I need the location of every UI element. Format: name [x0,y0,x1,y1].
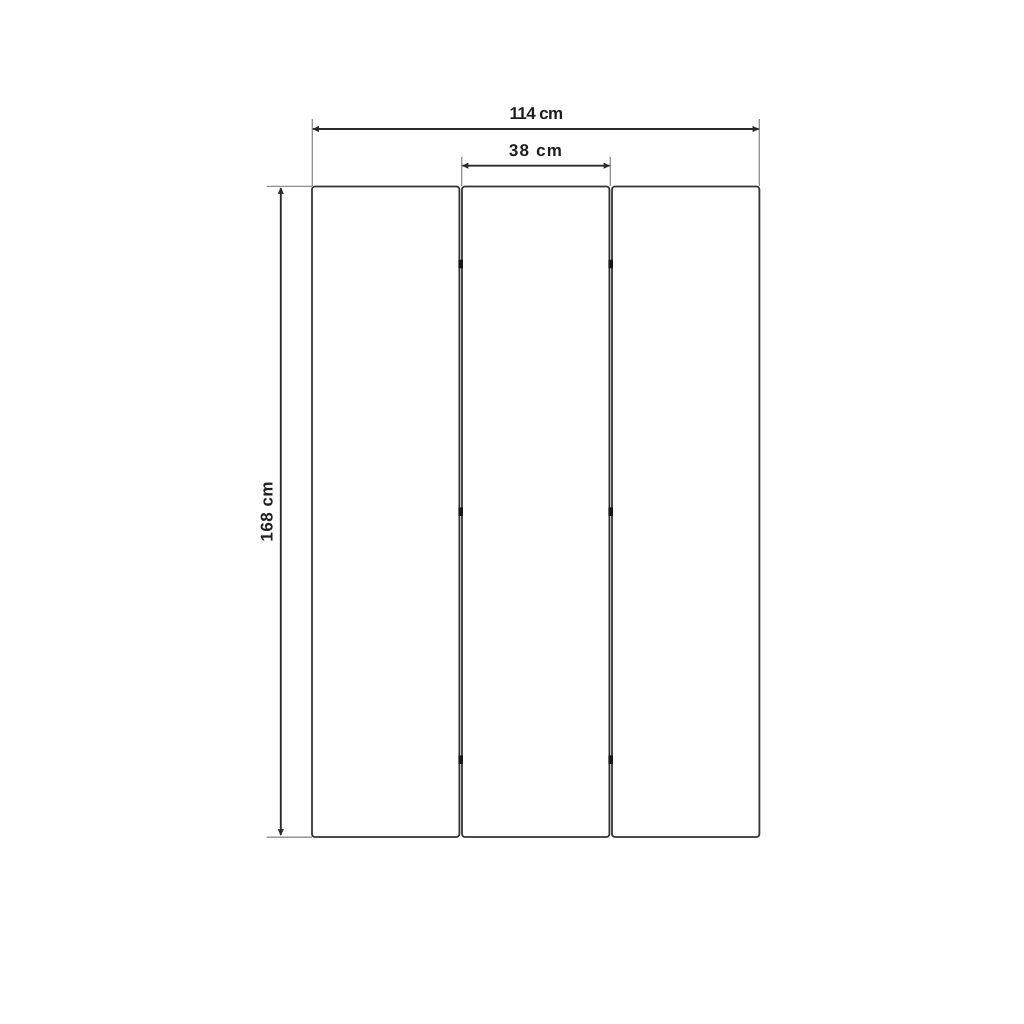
svg-text:38 cm: 38 cm [509,141,563,160]
svg-text:114 cm: 114 cm [509,104,563,123]
svg-text:168 cm: 168 cm [258,481,277,542]
